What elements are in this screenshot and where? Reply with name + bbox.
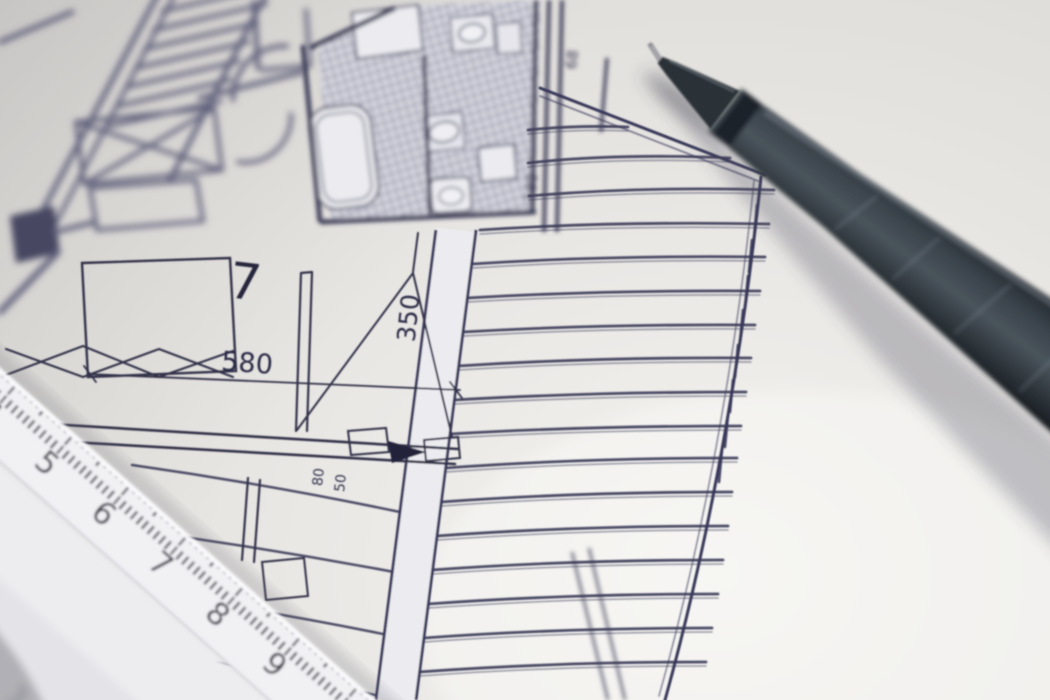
left-wall-section (0, 206, 95, 312)
dimension-68: 68 (562, 49, 582, 70)
room-number: 7 (226, 251, 265, 312)
second-sink (450, 14, 495, 52)
dimension-80: 80 (310, 467, 328, 486)
dimension-180: 180 (521, 172, 542, 202)
fixture-block (496, 22, 522, 54)
washer-block (478, 144, 517, 182)
floor-plan-blurred-area (0, 0, 310, 312)
toilet (430, 177, 472, 214)
bathroom (290, 0, 560, 230)
dimension-580: 580 (220, 346, 274, 381)
dimension-line-580 (84, 366, 462, 398)
blueprint-photo: 68 180 (0, 0, 1050, 700)
staircase (28, 0, 275, 244)
door-post (296, 272, 312, 431)
dimension-350: 350 (392, 293, 426, 343)
dimension-50: 50 (332, 473, 350, 492)
sink (424, 112, 465, 152)
